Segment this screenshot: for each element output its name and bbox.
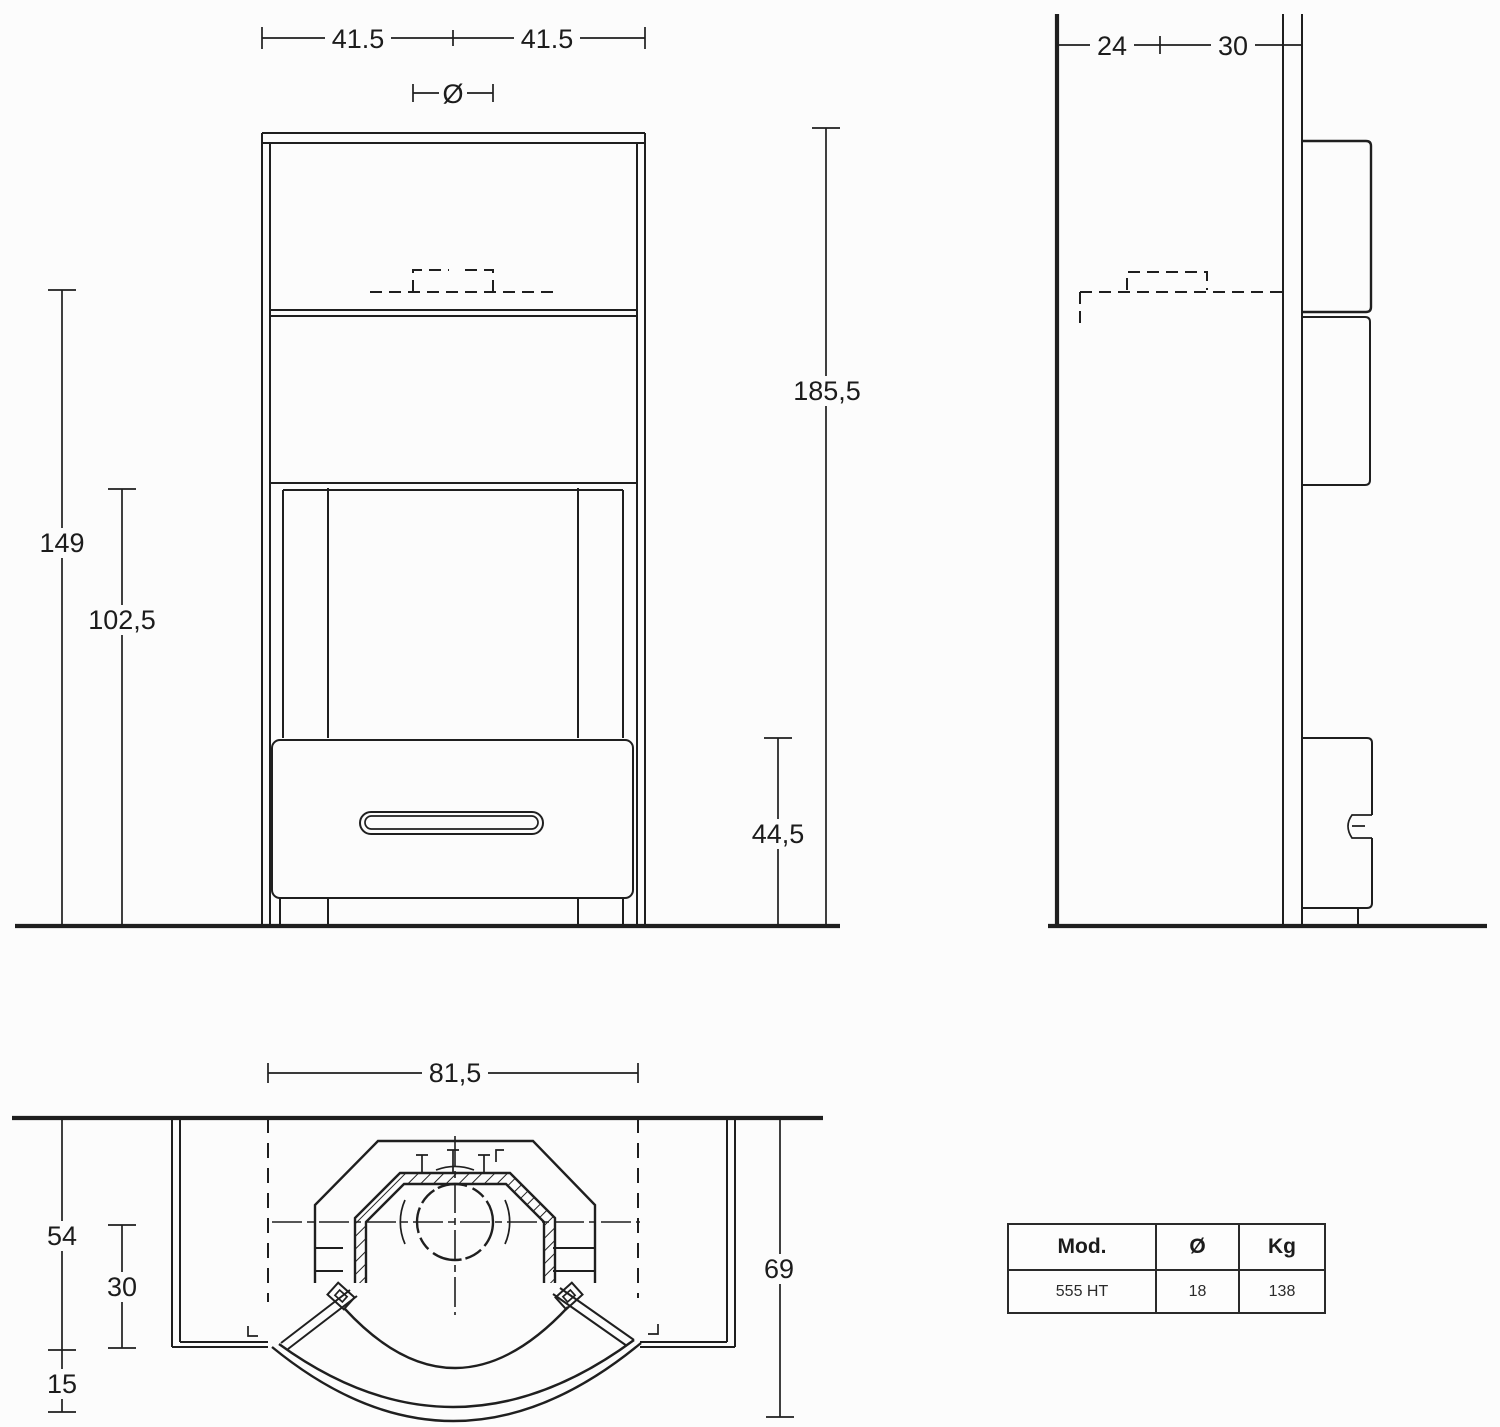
spec-table-data-row: 555 HT 18 138 (1008, 1270, 1325, 1313)
dim-front-top-left: 41.5 (325, 24, 391, 54)
spec-value-mod: 555 HT (1008, 1270, 1156, 1313)
dim-label: 69 (764, 1254, 794, 1284)
dim-label: 41.5 (332, 24, 385, 54)
plan-projection-dashed (268, 1118, 638, 1302)
dim-label: Ø (442, 79, 463, 109)
dim-front-flue-symbol: Ø (439, 79, 467, 109)
dim-label: 30 (1218, 31, 1248, 61)
spec-value-weight: 138 (1239, 1270, 1325, 1313)
front-view (15, 27, 840, 926)
dim-side-wall-distance: 24 (1090, 31, 1134, 61)
dim-plan-body-depth: 54 (40, 1221, 84, 1251)
dim-front-height-flue: 149 (34, 528, 90, 558)
dim-front-height-total: 185,5 (785, 376, 869, 406)
dim-label: 41.5 (521, 24, 574, 54)
dim-plan-top-width: 81,5 (422, 1058, 488, 1088)
dim-label: 24 (1097, 31, 1127, 61)
plan-left-panel (172, 1118, 268, 1347)
spec-table: Mod. Ø Kg 555 HT 18 138 (1007, 1223, 1326, 1314)
dim-plan-door-offset: 15 (40, 1369, 84, 1399)
plan-flue-circle (272, 1136, 640, 1315)
dim-label: 149 (39, 528, 84, 558)
spec-header-mod: Mod. (1008, 1224, 1156, 1270)
front-drawer (272, 740, 633, 898)
dim-label: 81,5 (429, 1058, 482, 1088)
side-view (1048, 14, 1487, 926)
side-drawer-handle (1348, 815, 1372, 838)
dim-label: 102,5 (88, 605, 156, 635)
front-height-dimensions (48, 128, 840, 925)
spec-header-weight: Kg (1239, 1224, 1325, 1270)
technical-drawing-page: 41.5 41.5 Ø 149 102,5 185,5 44,5 24 (0, 0, 1500, 1427)
dim-side-body-depth: 30 (1211, 31, 1255, 61)
plan-door-arcs (272, 1288, 641, 1421)
dim-label: 44,5 (752, 819, 805, 849)
dim-plan-inner-depth: 30 (100, 1272, 144, 1302)
side-middle-box (1302, 317, 1370, 485)
dim-label: 54 (47, 1221, 77, 1251)
side-back-panel (1283, 14, 1302, 926)
plan-depth-dimensions (48, 1118, 794, 1417)
dim-front-top-right: 41.5 (514, 24, 580, 54)
dim-front-height-opening: 102,5 (80, 605, 164, 635)
plan-view (12, 1063, 823, 1421)
side-upper-box (1302, 141, 1371, 312)
front-flue-collar-dashed (370, 270, 560, 292)
front-feet (280, 898, 623, 924)
front-body-outline (262, 133, 645, 925)
dim-plan-total-depth: 69 (757, 1254, 801, 1284)
plan-right-panel (640, 1118, 735, 1347)
plan-collar-ticks (416, 1150, 504, 1173)
front-top-dimension (262, 27, 645, 49)
technical-drawing-svg: 41.5 41.5 Ø 149 102,5 185,5 44,5 24 (0, 0, 1500, 1427)
side-drawer-box (1302, 738, 1372, 925)
dim-label: 15 (47, 1369, 77, 1399)
dim-label: 185,5 (793, 376, 861, 406)
dim-front-height-base: 44,5 (744, 819, 812, 849)
spec-table-header-row: Mod. Ø Kg (1008, 1224, 1325, 1270)
spec-value-diameter: 18 (1156, 1270, 1239, 1313)
spec-header-diameter: Ø (1156, 1224, 1239, 1270)
side-flue-dashed (1080, 272, 1283, 325)
dim-label: 30 (107, 1272, 137, 1302)
